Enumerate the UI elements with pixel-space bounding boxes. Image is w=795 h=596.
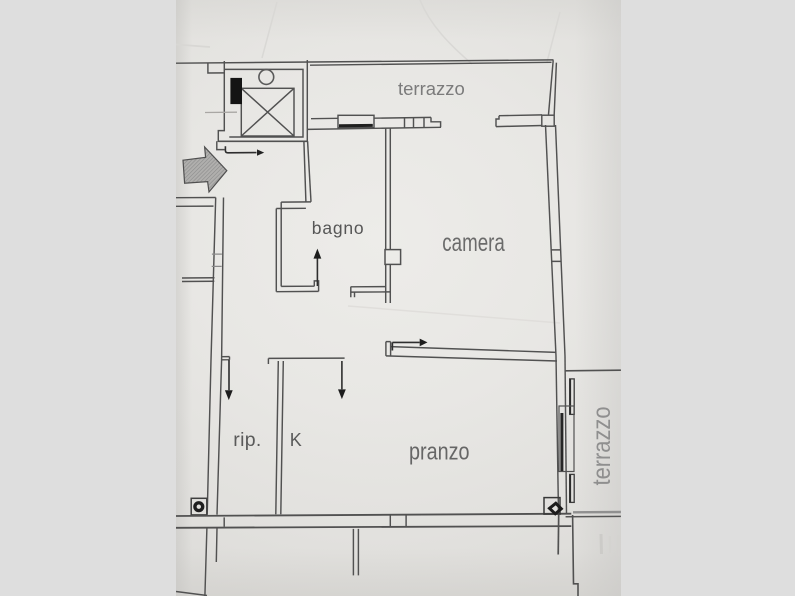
svg-text:K: K [290, 430, 302, 450]
svg-text:camera: camera [442, 229, 505, 257]
svg-text:pranzo: pranzo [409, 439, 470, 466]
svg-text:terrazzo: terrazzo [588, 407, 616, 486]
svg-text:bagno: bagno [312, 218, 365, 238]
svg-text:rip.: rip. [233, 429, 261, 451]
svg-text:terrazzo: terrazzo [398, 78, 465, 99]
